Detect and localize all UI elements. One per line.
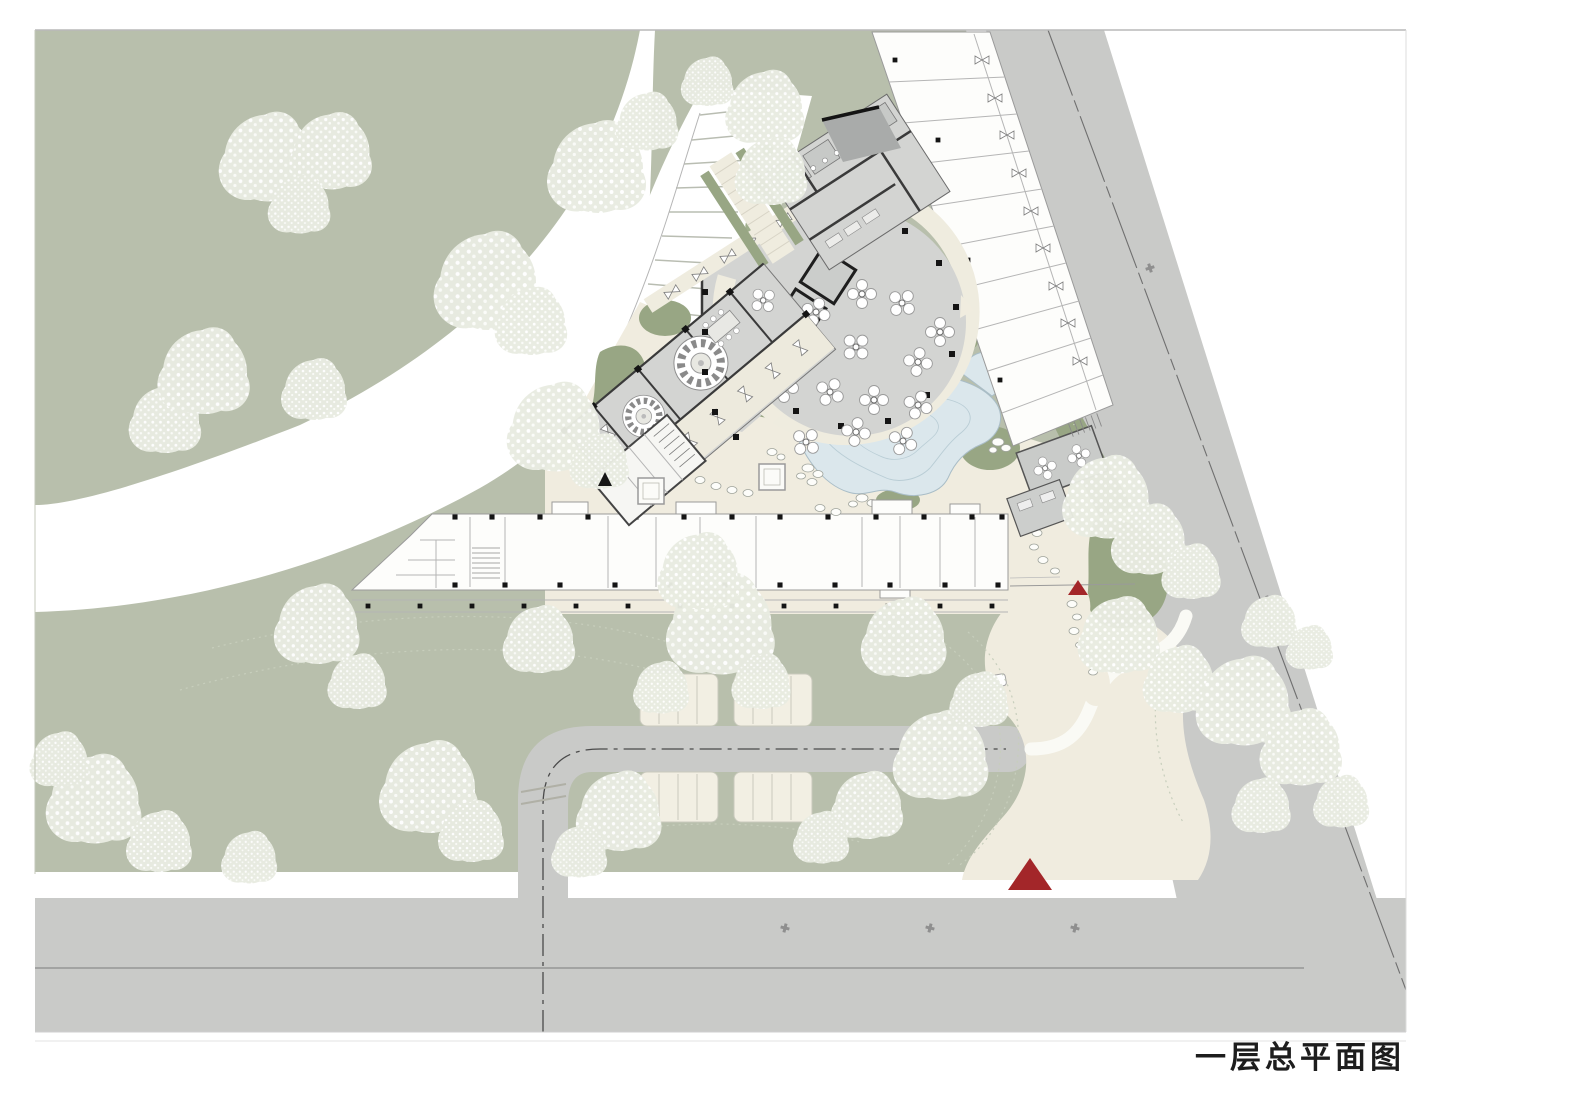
drawing-sheet: 一层总平面图: [0, 0, 1594, 1100]
site-plan-canvas: 一层总平面图: [0, 0, 1594, 1100]
perimeter-road-bottom: [35, 898, 1406, 1032]
stall-group: [734, 772, 812, 822]
plan-title: 一层总平面图: [1195, 1040, 1405, 1075]
